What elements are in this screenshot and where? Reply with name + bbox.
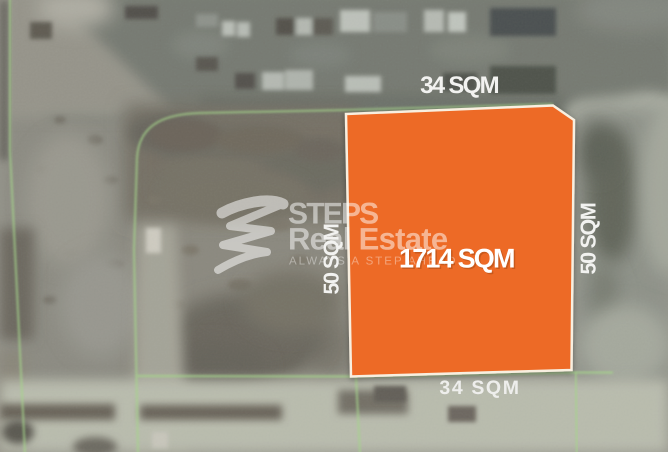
svg-text:34 SQM: 34 SQM bbox=[439, 377, 520, 399]
svg-text:34 SQM: 34 SQM bbox=[420, 72, 499, 99]
svg-text:50 SQM: 50 SQM bbox=[577, 203, 601, 274]
svg-text:1714 SQM: 1714 SQM bbox=[399, 244, 514, 274]
svg-text:50 SQM: 50 SQM bbox=[320, 224, 344, 294]
